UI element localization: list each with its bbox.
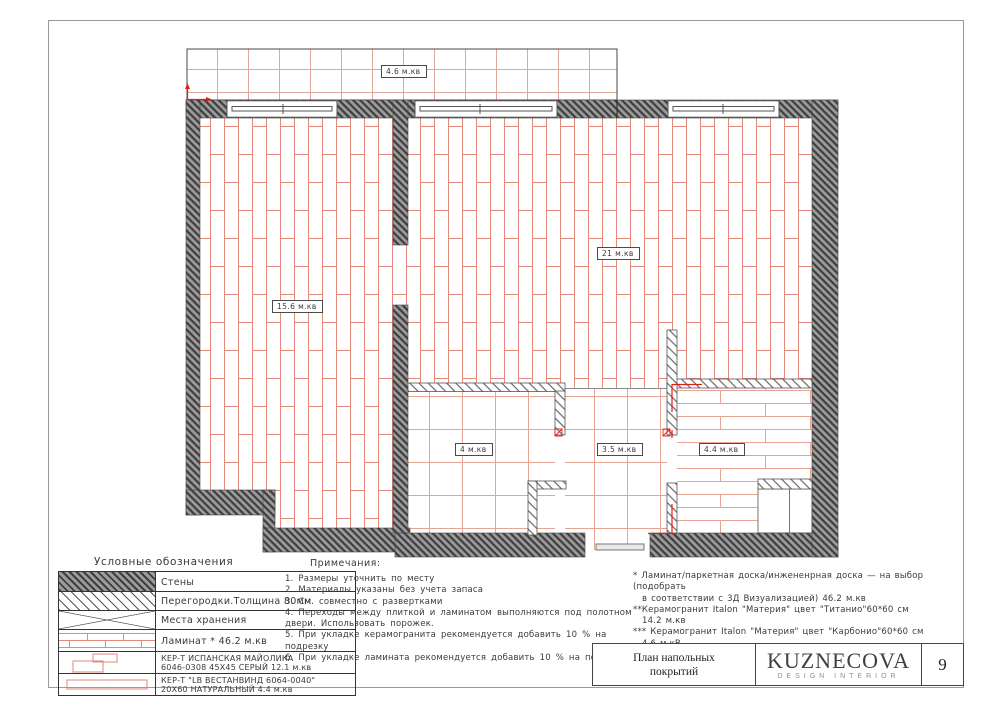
area-label-balcony: 4.6 м.кв [381, 65, 427, 78]
legend-title: Условные обозначения [94, 556, 233, 568]
area-label-bathroom: 4 м.кв [455, 443, 493, 456]
drawing-title-line1: План напольных [633, 651, 715, 665]
storage-cross-swatch [59, 611, 156, 629]
footnote-line: в соответствии с 3Д Визуализацией) 46.2 … [633, 594, 978, 605]
hallway-closet [758, 489, 812, 533]
door-opening-floor [393, 245, 408, 305]
page-number-box: 9 [921, 643, 964, 686]
partition-bath-top [408, 383, 565, 392]
window-2 [415, 101, 557, 117]
note-item: 1. Размеры уточнить по месту [285, 574, 653, 585]
ceramic-tile-swatch-2 [59, 674, 156, 695]
window-3 [668, 101, 779, 117]
wall-step-h2 [263, 528, 410, 552]
partition-hall-left-upper [667, 330, 677, 435]
wall-right [812, 100, 838, 557]
partition-closet-top [758, 479, 812, 489]
studio-logo-subtitle: DESIGN INTERIOR [777, 673, 899, 680]
partition-hall-top [667, 379, 812, 388]
page-number: 9 [938, 655, 947, 675]
area-label-wc: 3.5 м.кв [597, 443, 643, 456]
living-room-floor [200, 118, 393, 528]
laminate-brick-swatch [59, 630, 156, 651]
area-label-hallway: 4.4 м.кв [699, 443, 745, 456]
partition-hatch-swatch [59, 592, 156, 610]
ceramic-tile-swatch-1 [59, 652, 156, 673]
notes-title: Примечания: [310, 558, 381, 569]
area-label-living: 15.6 м.кв [272, 300, 323, 313]
studio-logo: KUZNECOVA [767, 650, 910, 672]
drawing-title-line2: покрытий [650, 665, 698, 679]
entry-threshold [596, 544, 644, 550]
window-1 [227, 101, 337, 117]
partition-bath-right-stub [555, 391, 565, 435]
footnote-line: *** Керамогранит Italon "Материя" цвет "… [633, 627, 978, 638]
footnote-line: **Керамогранит Italon "Материя" цвет "Ти… [633, 605, 978, 616]
wall-left [186, 100, 200, 515]
legend-row-ker2: КЕР-Т "LB ВЕСТАНВИНД 6064-0040" 20X60 НА… [59, 674, 355, 695]
wall-middle-upper [393, 100, 408, 245]
footnote-line: 14.2 м.кв [633, 616, 978, 627]
wc-floor [565, 389, 667, 533]
drawing-title-box: План напольных покрытий [592, 643, 756, 686]
note-item: 2. Материалы указаны без учета запаса [285, 585, 653, 596]
wall-middle-lower [393, 305, 408, 533]
footnote-line: * Ламинат/паркетная доска/инжененрная до… [633, 571, 978, 594]
walls-hatch-swatch [59, 572, 156, 591]
area-label-kitchen: 21 м.кв [597, 247, 640, 260]
legend-label-line2: 20X60 НАТУРАЛЬНЫЙ 4.4 м.кв [161, 685, 352, 695]
wall-bottom-left [395, 533, 585, 557]
legend-label-line1: КЕР-Т "LB ВЕСТАНВИНД 6064-0040" [161, 676, 352, 686]
partition-l-vertical [528, 481, 537, 535]
note-item: 4. Переходы между плиткой и ламинатом вы… [285, 608, 653, 631]
footnotes-list: * Ламинат/паркетная доска/инжененрная до… [633, 571, 978, 650]
studio-logo-box: KUZNECOVA DESIGN INTERIOR [755, 643, 922, 686]
wall-step-h1 [186, 490, 275, 515]
wall-bottom-right [650, 533, 838, 557]
note-item: 3. См. совместно с развертками [285, 597, 653, 608]
drawing-sheet: 4.6 м.кв 15.6 м.кв 21 м.кв 4 м.кв 3.5 м.… [0, 0, 990, 704]
legend-label: КЕР-Т "LB ВЕСТАНВИНД 6064-0040" 20X60 НА… [156, 674, 355, 695]
legend-label-line2: 6046-0308 45X45 СЕРЫЙ 12.1 м.кв [161, 663, 352, 673]
